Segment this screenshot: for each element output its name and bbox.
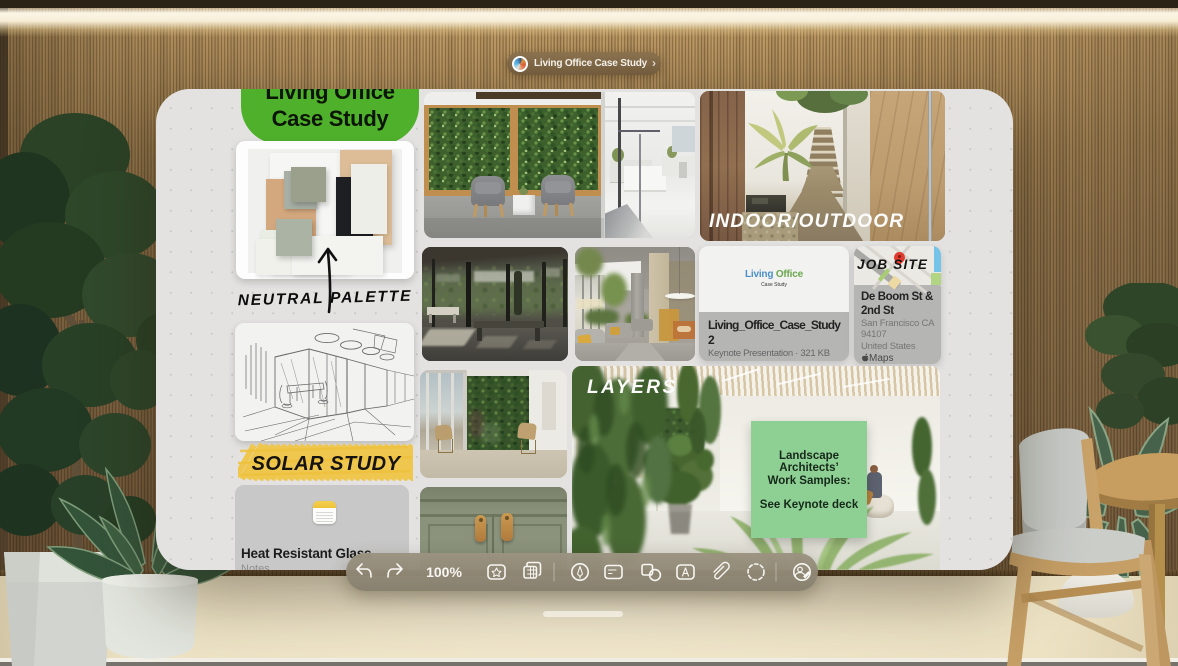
svg-text:SOLAR STUDY: SOLAR STUDY	[252, 453, 402, 475]
svg-text:100%: 100%	[426, 564, 462, 580]
